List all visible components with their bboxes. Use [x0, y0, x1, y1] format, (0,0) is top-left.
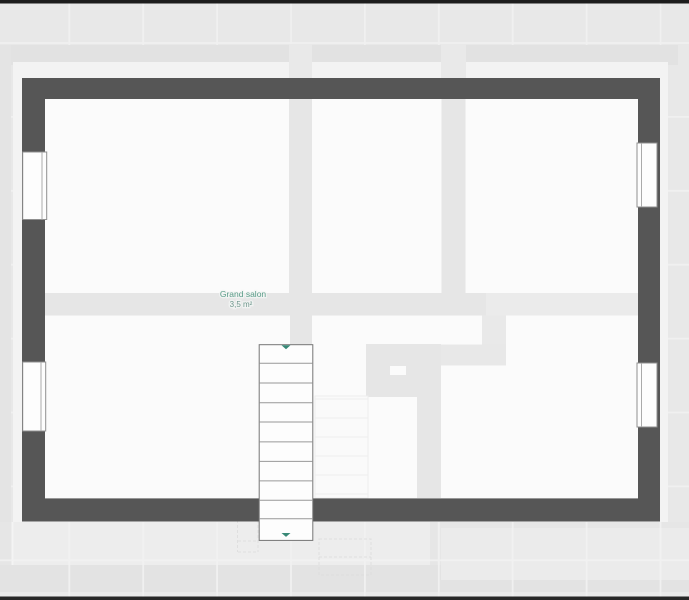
svg-text:Grand salon: Grand salon — [220, 289, 267, 299]
svg-text:3,5 m²: 3,5 m² — [230, 300, 253, 309]
